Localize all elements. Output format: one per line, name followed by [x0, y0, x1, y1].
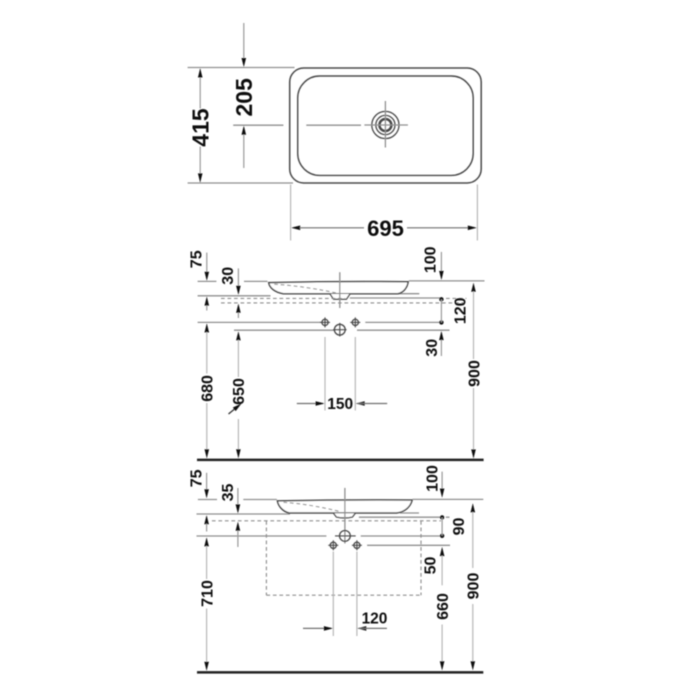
svg-text:30: 30	[424, 339, 441, 357]
svg-text:100: 100	[422, 246, 439, 273]
svg-text:205: 205	[231, 78, 257, 117]
svg-text:695: 695	[367, 216, 404, 241]
svg-text:900: 900	[466, 360, 483, 387]
svg-text:660: 660	[435, 593, 452, 620]
svg-text:710: 710	[199, 580, 216, 607]
svg-text:120: 120	[452, 297, 469, 324]
svg-text:50: 50	[423, 557, 440, 575]
svg-text:30: 30	[220, 267, 237, 285]
svg-text:650: 650	[231, 378, 248, 405]
svg-text:900: 900	[466, 573, 483, 600]
svg-text:35: 35	[220, 484, 237, 502]
svg-text:120: 120	[362, 611, 388, 628]
svg-text:75: 75	[189, 250, 206, 268]
svg-text:150: 150	[327, 396, 353, 413]
svg-text:100: 100	[425, 465, 442, 492]
svg-text:415: 415	[187, 108, 213, 147]
svg-text:90: 90	[451, 518, 468, 536]
svg-text:680: 680	[200, 375, 217, 402]
svg-text:75: 75	[188, 469, 205, 487]
